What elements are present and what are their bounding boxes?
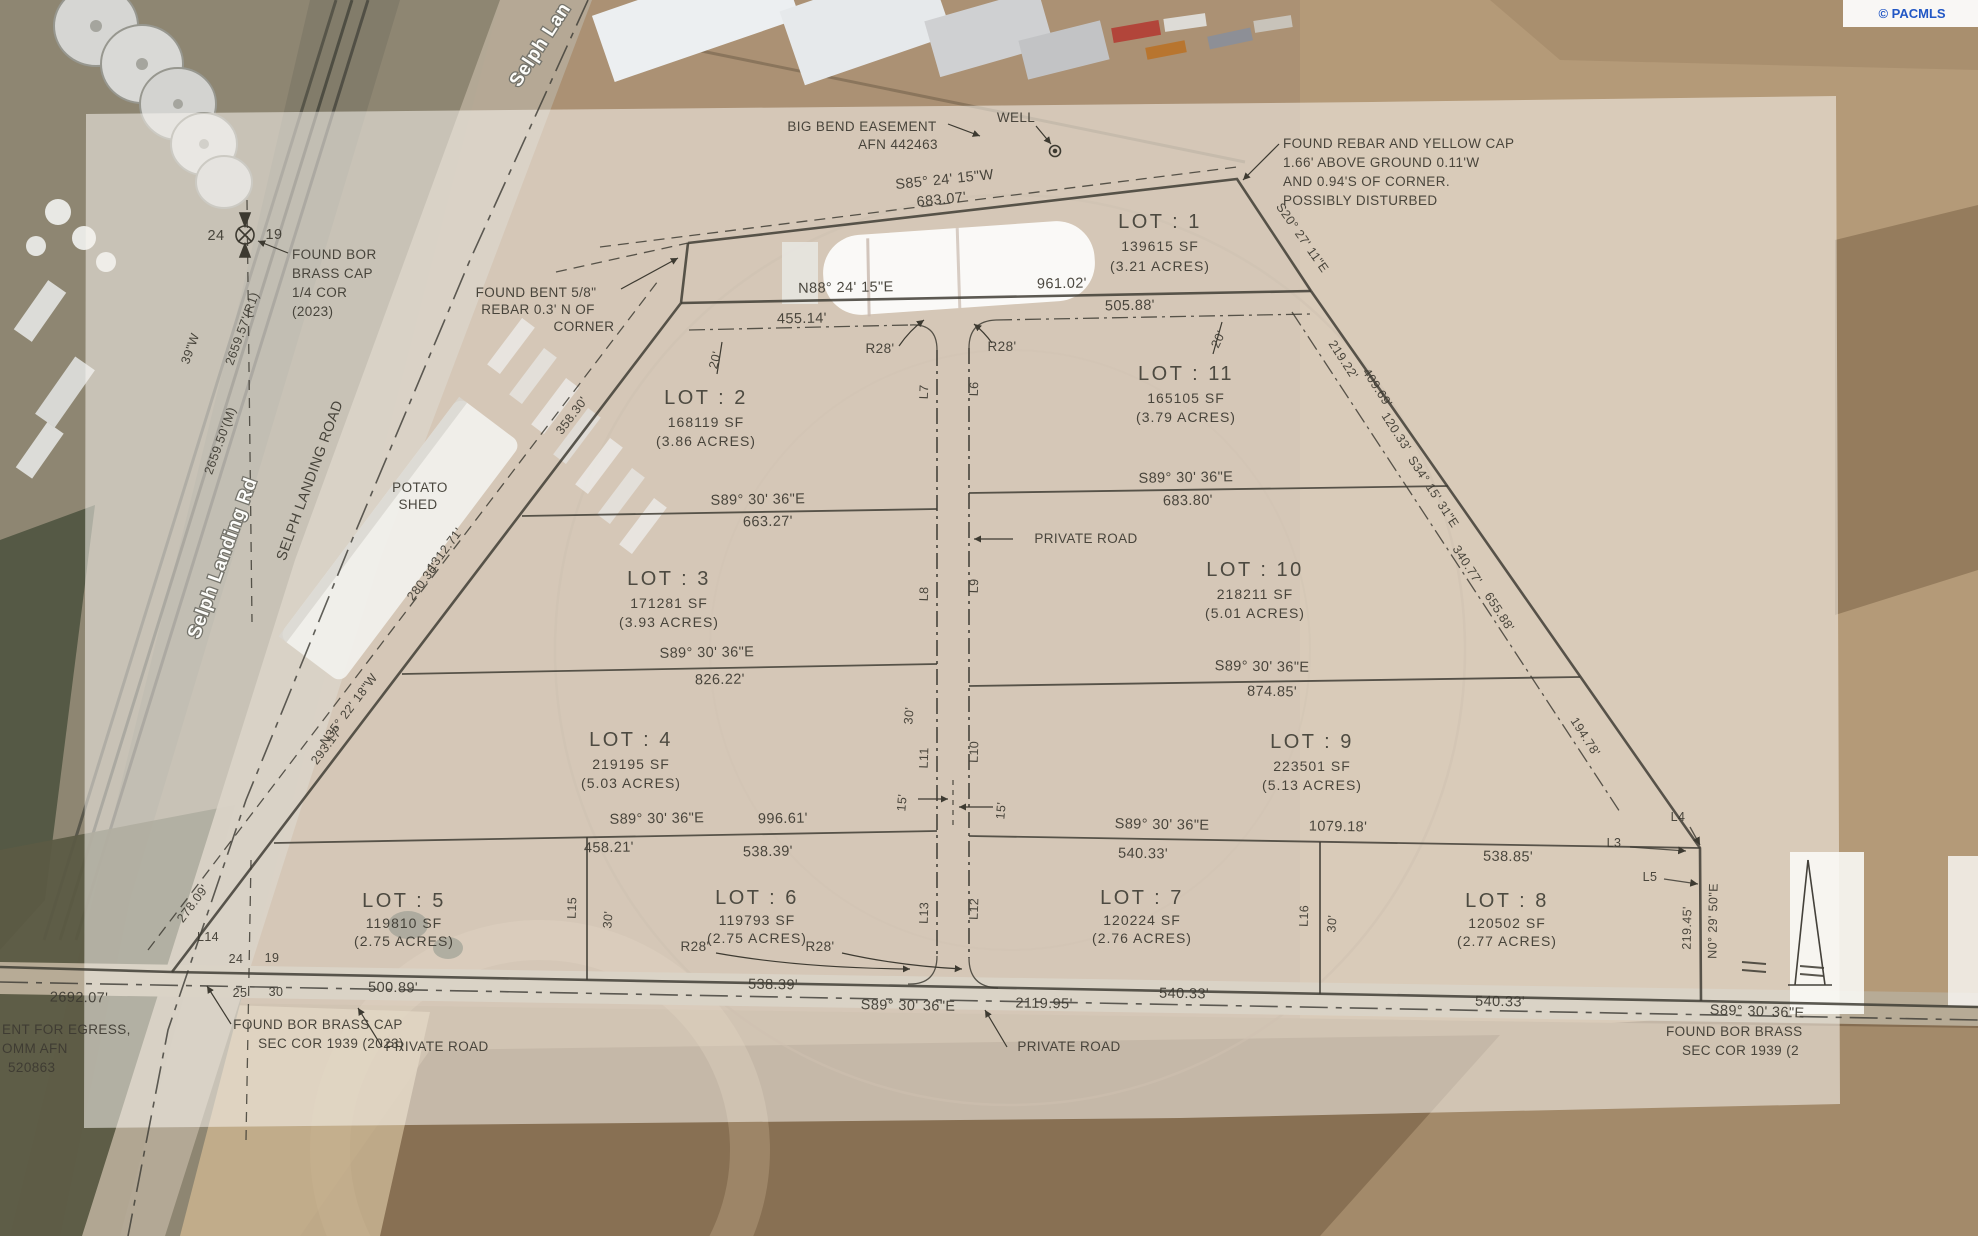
- dim-h6-a: 540.33': [1118, 846, 1168, 863]
- note-rebar-1: FOUND REBAR AND YELLOW CAP: [1283, 136, 1514, 151]
- lot-7-acres: (2.76 ACRES): [1092, 930, 1192, 946]
- building-potato: POTATO: [392, 480, 448, 495]
- note-rebar-3: AND 0.94'S OF CORNER.: [1283, 174, 1450, 189]
- dim-h5-bearing: S89° 30' 36"E: [609, 810, 704, 828]
- lot-11-name: LOT : 11: [1138, 363, 1234, 385]
- dim-h2-bearing: S89° 30' 36"E: [1138, 469, 1233, 487]
- section-24-nw: 24: [208, 228, 225, 244]
- ref-l11: L11: [917, 747, 932, 769]
- lot-5-name: LOT : 5: [362, 890, 446, 912]
- note-rebar-2: 1.66' ABOVE GROUND 0.11'W: [1283, 155, 1479, 170]
- lot-8-sf: 120502 SF: [1468, 915, 1546, 931]
- dim-505: 505.88': [1105, 298, 1155, 315]
- lot-7-sf: 120224 SF: [1103, 912, 1181, 928]
- note-qcor-1: FOUND BOR: [292, 247, 377, 262]
- note-swcor-1: FOUND BOR BRASS CAP: [233, 1017, 403, 1032]
- lot-2-acres: (3.86 ACRES): [656, 433, 756, 449]
- dim-h2-len: 683.80': [1163, 493, 1213, 510]
- dim-h5-a: 458.21': [584, 840, 634, 857]
- dim-road15a: 15': [894, 793, 909, 812]
- road-name-private-bl: PRIVATE ROAD: [385, 1039, 488, 1054]
- note-swcor-2: SEC COR 1939 (2023): [258, 1036, 404, 1051]
- note-secor-1: FOUND BOR BRASS: [1666, 1024, 1803, 1039]
- dim-bot3: 540.33': [1159, 986, 1209, 1003]
- lot-11-sf: 165105 SF: [1147, 390, 1225, 406]
- aerial-plat-map: © PACMLS Selph Lan Selph Landing Rd SELP…: [0, 0, 1978, 1236]
- section-19-sw: 19: [265, 951, 280, 965]
- note-qcor-3: 1/4 COR: [292, 285, 347, 300]
- lot-9-acres: (5.13 ACRES): [1262, 777, 1362, 793]
- lot-10-name: LOT : 10: [1206, 559, 1303, 581]
- lot-8-acres: (2.77 ACRES): [1457, 933, 1557, 949]
- lot-6-name: LOT : 6: [715, 887, 799, 909]
- dim-bot-bearing: S89° 30' 36"E: [861, 997, 956, 1015]
- lot-6-acres: (2.75 ACRES): [707, 930, 807, 946]
- lot-2-name: LOT : 2: [664, 387, 748, 409]
- dim-bot-right-bearing: S89° 30' 36"E: [1710, 1002, 1805, 1021]
- note-secor-2: SEC COR 1939 (2: [1682, 1043, 1799, 1058]
- ref-l8: L8: [917, 586, 932, 601]
- dim-h3-len: 826.22': [695, 672, 745, 689]
- dim-bot4: 540.33': [1475, 994, 1525, 1011]
- dim-north-len: 961.02': [1037, 276, 1087, 293]
- road-name-private-br: PRIVATE ROAD: [1017, 1039, 1120, 1054]
- ref-l14: L14: [197, 930, 219, 944]
- ref-l9: L9: [967, 578, 982, 593]
- note-big-bend-1: BIG BEND EASEMENT: [787, 119, 936, 134]
- ref-l6: L6: [967, 381, 982, 396]
- dim-h5-c: 538.39': [743, 844, 793, 861]
- road-name-private-center: PRIVATE ROAD: [1034, 531, 1137, 546]
- attribution-text: © PACMLS: [1878, 6, 1945, 21]
- lot-3-sf: 171281 SF: [630, 595, 708, 611]
- lot-5-acres: (2.75 ACRES): [354, 933, 454, 949]
- lot-6-sf: 119793 SF: [719, 912, 795, 928]
- lot-3-name: LOT : 3: [627, 568, 711, 590]
- lot-9-sf: 223501 SF: [1273, 758, 1351, 774]
- dim-r28-br: R28': [806, 939, 835, 954]
- dim-lot30a: 30': [600, 910, 615, 929]
- dim-road30: 30': [901, 706, 916, 725]
- section-19-nw: 19: [266, 227, 283, 243]
- lot-10-sf: 218211 SF: [1217, 586, 1293, 602]
- dim-bot-left: 2692.07': [50, 989, 109, 1006]
- attribution-banner: © PACMLS: [1843, 0, 1978, 27]
- lot-10-acres: (5.01 ACRES): [1205, 605, 1305, 621]
- lot-1-sf: 139615 SF: [1121, 238, 1199, 254]
- lot-2-sf: 168119 SF: [668, 414, 744, 430]
- dim-bot1: 500.89': [368, 980, 418, 997]
- dim-455: 455.14': [777, 311, 827, 328]
- dim-se-len: 219.45': [1680, 906, 1695, 950]
- dim-h6-len: 1079.18': [1309, 818, 1368, 835]
- dim-r28-tl: R28': [866, 341, 895, 356]
- ref-l16: L16: [1297, 905, 1312, 928]
- dim-road15b: 15': [993, 801, 1008, 820]
- note-qcor-2: BRASS CAP: [292, 266, 373, 281]
- dim-r28-tr: R28': [988, 339, 1017, 354]
- note-egress-1: ENT FOR EGRESS,: [2, 1022, 131, 1037]
- dim-se-bearing: N0° 29' 50"E: [1705, 883, 1720, 959]
- lot-4-sf: 219195 SF: [592, 756, 670, 772]
- note-qcor-4: (2023): [292, 304, 333, 319]
- dim-h6-c: 538.85': [1483, 849, 1533, 866]
- lot-8-name: LOT : 8: [1465, 890, 1549, 912]
- dim-lot30b: 30': [1324, 914, 1339, 933]
- note-bent-3: CORNER: [554, 319, 615, 334]
- section-30-sw: 30: [269, 985, 284, 999]
- lot-4-name: LOT : 4: [589, 729, 673, 751]
- lot-7-name: LOT : 7: [1100, 887, 1184, 909]
- dim-north-bearing: N88° 24' 15"E: [798, 279, 894, 297]
- section-25-sw: 25: [233, 986, 248, 1000]
- ref-l7: L7: [917, 384, 932, 399]
- ref-l13: L13: [917, 902, 932, 925]
- lot-5-sf: 119810 SF: [366, 915, 442, 931]
- ref-l12: L12: [967, 898, 982, 921]
- ref-l15: L15: [565, 897, 580, 920]
- dim-h6-bearing: S89° 30' 36"E: [1115, 816, 1210, 834]
- dim-h1-bearing: S89° 30' 36"E: [710, 491, 805, 509]
- ref-l3: L3: [1607, 836, 1622, 850]
- note-big-bend-2: AFN 442463: [858, 137, 938, 152]
- note-egress-2: OMM AFN: [2, 1041, 68, 1056]
- dim-h4-bearing: S89° 30' 36"E: [1215, 658, 1310, 676]
- lot-4-acres: (5.03 ACRES): [581, 775, 681, 791]
- lot-9-name: LOT : 9: [1270, 731, 1354, 753]
- dim-bot-len: 2119.95': [1015, 996, 1073, 1013]
- dim-h1-len: 663.27': [743, 514, 793, 531]
- note-rebar-4: POSSIBLY DISTURBED: [1283, 193, 1438, 208]
- lot-3-acres: (3.93 ACRES): [619, 614, 719, 630]
- ref-l5: L5: [1643, 870, 1658, 884]
- ref-l10: L10: [967, 741, 982, 764]
- lot-11-acres: (3.79 ACRES): [1136, 409, 1236, 425]
- dim-h4-len: 874.85': [1247, 684, 1297, 701]
- dim-bot2: 538.39': [748, 977, 798, 994]
- dim-h5-len: 996.61': [758, 811, 808, 828]
- ref-l4: L4: [1671, 810, 1686, 824]
- dim-r28-bl: R28': [681, 939, 710, 954]
- note-bent-1: FOUND BENT 5/8": [476, 285, 597, 300]
- lot-1-acres: (3.21 ACRES): [1110, 258, 1210, 274]
- note-bent-2: REBAR 0.3' N OF: [481, 302, 595, 317]
- dim-h3-bearing: S89° 30' 36"E: [659, 644, 754, 662]
- section-24-sw: 24: [229, 952, 244, 966]
- note-egress-3: 520863: [8, 1060, 55, 1075]
- building-shed: SHED: [398, 497, 437, 512]
- lot-1-name: LOT : 1: [1118, 211, 1202, 233]
- note-well: WELL: [997, 110, 1035, 125]
